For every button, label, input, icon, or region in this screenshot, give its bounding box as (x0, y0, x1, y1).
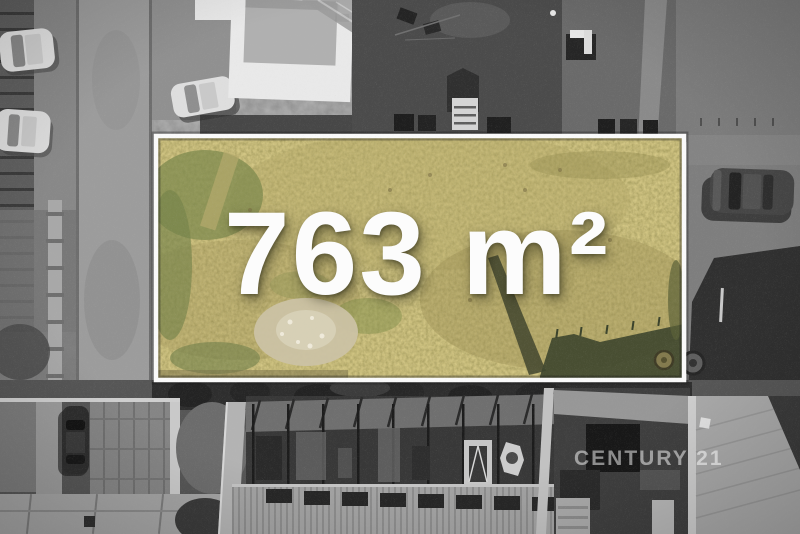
area-label: 763 m² (156, 136, 684, 380)
century21-watermark: CENTURY 21 (574, 447, 724, 471)
aerial-photo: 763 m² CENTURY 21 (0, 0, 800, 534)
